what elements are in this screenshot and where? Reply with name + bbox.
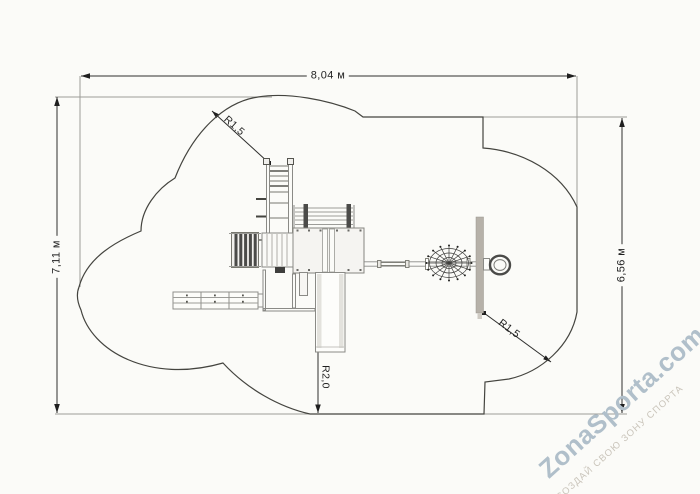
- step-block: [275, 267, 285, 273]
- lower-deck: [263, 270, 315, 311]
- spider-net-climber: [426, 245, 473, 282]
- radius-slide-label: R2,0: [320, 363, 331, 391]
- height-right-dimension-label: 6,56 м: [616, 244, 629, 286]
- balance-beam: [364, 259, 476, 270]
- footbridge: [262, 233, 293, 273]
- climbing-panel: [476, 217, 484, 319]
- arched-dark-ladder: [229, 233, 261, 268]
- ring-hoop: [484, 256, 511, 275]
- climbing-ladder: [256, 159, 294, 241]
- height-left-dimension-label: 7,11 м: [51, 236, 64, 278]
- play-tower-platform: [293, 228, 364, 273]
- side-bench-rails: [173, 292, 263, 309]
- top-railing: [294, 204, 354, 229]
- width-dimension-label: 8,04 м: [307, 70, 349, 83]
- blueprint-canvas: 8,04 м 7,11 м 6,56 м R1,5 R1,5 R2,0 Zona…: [0, 0, 700, 494]
- slide: [316, 273, 346, 353]
